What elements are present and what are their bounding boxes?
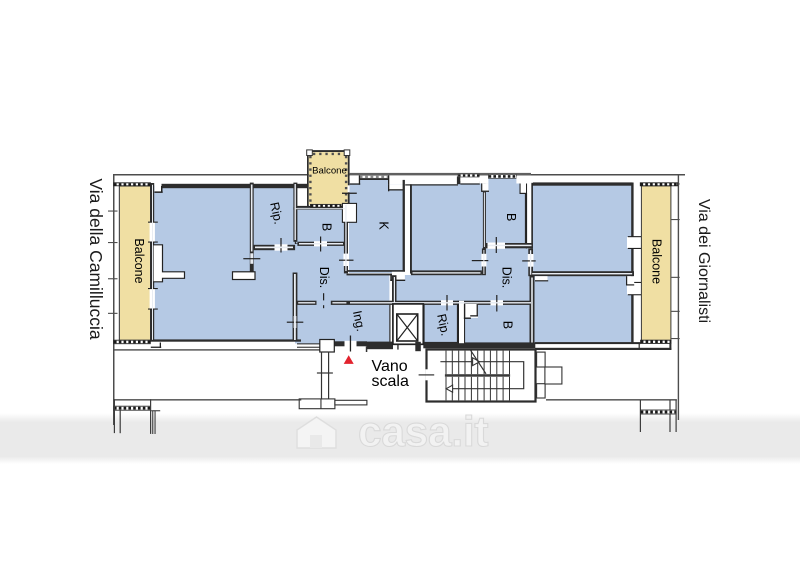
svg-text:Balcone: Balcone	[132, 238, 146, 283]
svg-text:scala: scala	[372, 373, 409, 390]
svg-text:Dis.: Dis.	[500, 267, 514, 289]
svg-text:Via dei Giornalisti: Via dei Giornalisti	[695, 199, 712, 323]
svg-text:B: B	[320, 223, 334, 231]
svg-text:Via della Camilluccia: Via della Camilluccia	[86, 178, 106, 339]
svg-text:B: B	[501, 321, 515, 329]
svg-text:K: K	[377, 221, 391, 230]
svg-text:Balcone: Balcone	[312, 166, 347, 177]
svg-text:Dis.: Dis.	[317, 267, 331, 289]
svg-text:B: B	[504, 213, 518, 221]
svg-text:Balcone: Balcone	[650, 239, 664, 284]
svg-text:casa.it: casa.it	[358, 409, 488, 456]
